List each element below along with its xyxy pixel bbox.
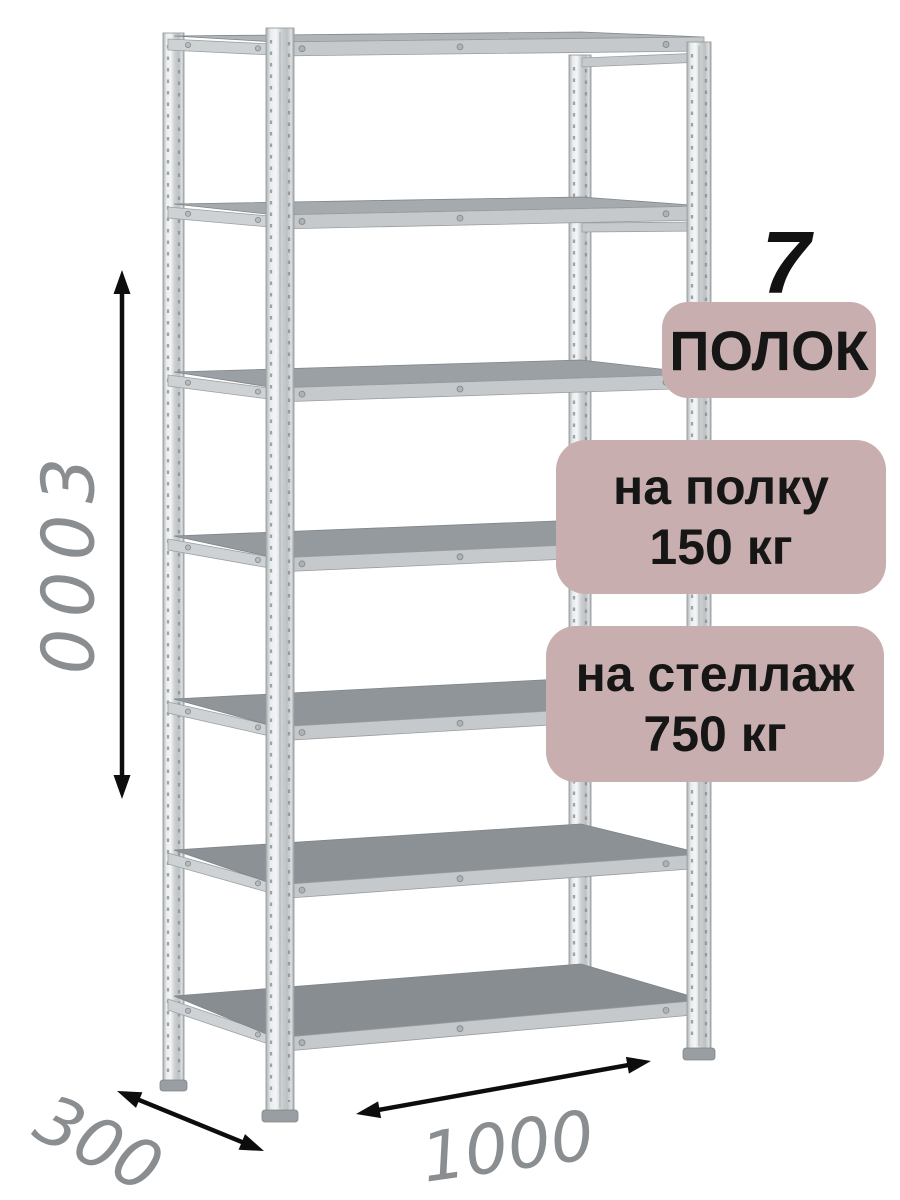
height-dimension-arrow: [114, 270, 131, 799]
shelf-3: [168, 360, 704, 402]
shelf-6: [168, 824, 704, 899]
post-back-left: [160, 33, 187, 1091]
post-front-left: [262, 28, 298, 1122]
shelf-count-badge-label: ПОЛОК: [669, 318, 868, 383]
per-rack-load-line1: на стеллаж: [576, 644, 855, 704]
shelf-count-badge: ПОЛОК: [662, 302, 876, 398]
shelf-7: [168, 964, 704, 1052]
shelf-count-number: 7: [738, 218, 834, 308]
product-image: 7 ПОЛОК на полку 150 кг на стеллаж 750 к…: [0, 0, 900, 1200]
height-dimension-label: 3000: [36, 452, 102, 680]
per-rack-load-line2: 750 кг: [643, 704, 786, 764]
per-shelf-load-badge: на полку 150 кг: [556, 440, 886, 594]
per-rack-load-badge: на стеллаж 750 кг: [546, 626, 884, 782]
shelf-2: [168, 197, 704, 232]
shelving-rack-illustration: [0, 0, 900, 1200]
shelf-1: [168, 32, 704, 67]
per-shelf-load-line1: на полку: [613, 457, 829, 517]
per-shelf-load-line2: 150 кг: [649, 517, 792, 577]
